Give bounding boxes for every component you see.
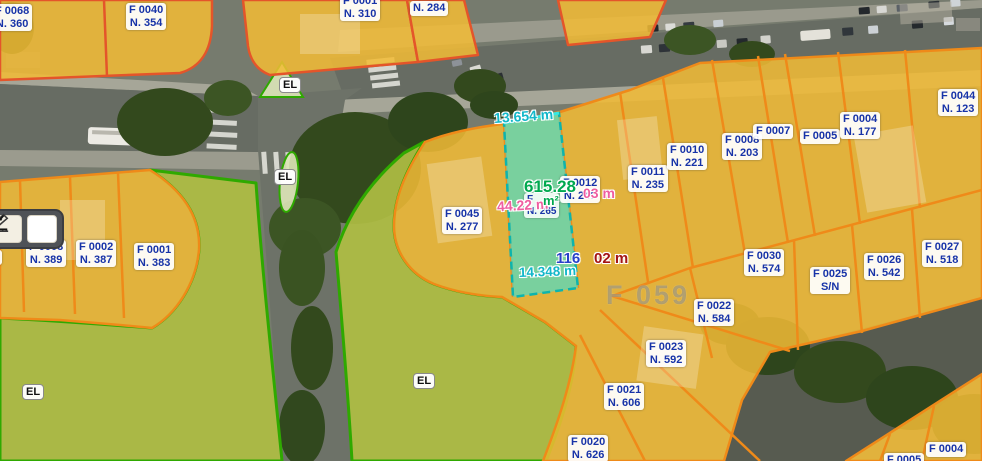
area-unit: m² [543,193,559,208]
parcel-label: F 0027N. 518 [922,240,962,267]
parcel-label: F 0001N. 383 [134,243,174,270]
parcel-label: F 0007 [753,124,793,139]
dimension-right-fragment: 03 m [583,185,615,201]
parcel-label: F 0026N. 542 [864,253,904,280]
el-label: EL [279,77,301,93]
el-label: EL [274,169,296,185]
parcel-label: F 0030N. 574 [744,249,784,276]
parcel-label: F 0011N. 235 [628,165,668,192]
measure-angle-button[interactable] [27,215,57,243]
parcel-label: F 0044N. 123 [938,89,978,116]
parcel-label: F 0020N. 626 [568,435,608,461]
parcel-label: F 0002N. 387 [76,240,116,267]
parcel-label: F 0010N. 221 [667,143,707,170]
measure-toolbar [0,209,64,249]
map-viewport[interactable]: F 0068N. 360 F 0040N. 354 F 0001N. 310 N… [0,0,982,461]
dimension-bottom-teal: 14.348 m [519,263,577,280]
el-label: EL [413,373,435,389]
parcel-label: F 0025S/N [810,267,850,294]
parcel-label: F 0021N. 606 [604,383,644,410]
parcel-polygon[interactable] [558,0,666,45]
parcel-label: F 0022N. 584 [694,299,734,326]
parcel-label: F 0001N. 310 [340,0,380,21]
dimension-left: 44.22 m [497,196,549,215]
parcel-label: F 0005 [800,129,840,144]
parcel-label: F 0004N. 177 [840,112,880,139]
parcel-label: F 0005 [884,453,924,461]
parcel-label-partial: 7 [0,250,2,265]
map-canvas [0,0,982,461]
parcel-label: F 0040N. 354 [126,3,166,30]
el-label: EL [22,384,44,400]
parcel-label: F 0004 [926,442,966,457]
sector-watermark: F 059 [606,280,690,311]
parcel-label: F 0045N. 277 [442,207,482,234]
parcel-label: F 0023N. 592 [646,340,686,367]
parcel-label: N. 284 [410,1,448,16]
dimension-bottom-red: 02 m [594,250,628,267]
parcel-label: F 0068N. 360 [0,4,32,31]
